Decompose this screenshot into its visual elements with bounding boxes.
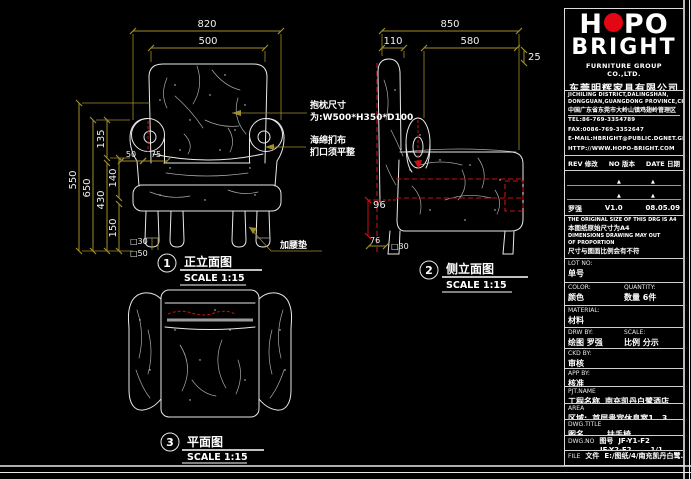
field-dwg-no: DWG.NO 图号 JF-Y1-F2 JF-Y2-F2 1/1 bbox=[565, 436, 683, 452]
field-lot-value: 单号 bbox=[568, 268, 680, 279]
note-en-2: DIMENSIONS DRAWING MAY OUT bbox=[568, 233, 680, 240]
field-area-label-cn: 区域: bbox=[568, 413, 587, 420]
field-color-label: COLOR: bbox=[568, 284, 624, 292]
field-file-value: E:/图纸/4/南充凯丹白鹭... bbox=[604, 452, 683, 460]
dim-front-820: 820 bbox=[197, 19, 216, 30]
title-block: H PO BRIGHT FURNITURE GROUP CO.,LTD. 东莞明… bbox=[564, 8, 683, 466]
field-quantity: QUANTITY: 数量 6件 bbox=[624, 284, 680, 305]
company-logo: H PO BRIGHT FURNITURE GROUP CO.,LTD. 东莞明… bbox=[565, 9, 683, 91]
fabric-speckles bbox=[159, 74, 255, 200]
field-file: FILE 文件 E:/图纸/4/南充凯丹白鹭... bbox=[565, 451, 683, 465]
field-area: AREA 区域: 首层贵宾休息室1、3 bbox=[565, 404, 683, 420]
email-address: E-MAIL:HBRIGHT@PUBLIC.DGNET.GD.CN bbox=[568, 135, 680, 145]
field-dwg-title-label: DWG.TITLE bbox=[568, 421, 680, 429]
view3-title: 平面图 bbox=[187, 435, 223, 449]
revision-rule-2 bbox=[567, 199, 681, 200]
revision-date: 08.05.09 bbox=[645, 204, 680, 214]
side-chair-drawing bbox=[377, 59, 524, 254]
website-url: HTTP://WWW.HOPO-BRIGHT.COM bbox=[568, 145, 680, 155]
dim-front-leg50: □50 bbox=[130, 249, 148, 258]
rev-col-label: REV 修改 bbox=[568, 158, 598, 168]
revision-triangle-icon: ▲ bbox=[617, 179, 621, 185]
dim-front-75: 75 bbox=[151, 150, 161, 159]
field-material-value: 材料 bbox=[568, 315, 680, 326]
annotation-pillow-line1: 抱枕尺寸 bbox=[310, 99, 346, 111]
field-dwg-title: DWG.TITLE 图名 扶手椅 bbox=[565, 420, 683, 436]
view2-number: 2 bbox=[425, 264, 433, 277]
note-cn-2: 尺寸与图面比例会有不符 bbox=[568, 247, 680, 256]
field-ckd-value: 审核 bbox=[568, 358, 680, 369]
field-drw-scale: DRW BY: 绘图 罗强 SCALE: 比例 分示 bbox=[565, 328, 683, 350]
field-area-value: 首层贵宾休息室1、3 bbox=[592, 413, 667, 420]
field-material-label: MATERIAL: bbox=[568, 307, 680, 315]
company-name-en: FURNITURE GROUP CO.,LTD. bbox=[568, 62, 680, 78]
field-scale-value: 比例 分示 bbox=[624, 337, 680, 348]
view1-title: 正立面图 bbox=[184, 254, 232, 269]
revision-triangle-icon: ▲ bbox=[651, 179, 655, 185]
dim-front-500: 500 bbox=[198, 36, 217, 47]
revision-entry: 罗强 V1.0 08.05.09 bbox=[568, 204, 680, 214]
field-scale-label: SCALE: bbox=[624, 329, 680, 337]
field-project-value: 南充凯丹白鹭酒店 bbox=[605, 396, 669, 405]
field-ckd-label: CKD BY: bbox=[568, 350, 680, 358]
field-area-label: AREA bbox=[568, 405, 680, 413]
dim-side-580: 580 bbox=[460, 36, 479, 47]
dim-side-110: 110 bbox=[383, 36, 402, 47]
field-file-label: FILE bbox=[568, 453, 580, 461]
note-cn-1: 本图纸原始尺寸为A4 bbox=[568, 224, 680, 233]
field-project-label: PJT.NAME bbox=[568, 388, 680, 396]
view3-number: 3 bbox=[166, 436, 174, 449]
field-dwg-no-label-cn: 图号 bbox=[599, 437, 613, 445]
logo-red-dot-icon bbox=[604, 13, 623, 32]
dim-front-140: 140 bbox=[108, 168, 119, 187]
field-scale: SCALE: 比例 分示 bbox=[624, 329, 680, 348]
address-cn: 中国广东省东莞市大岭山镇鸡翅岭管理区 bbox=[568, 106, 680, 116]
field-quantity-label: QUANTITY: bbox=[624, 284, 680, 292]
plan-view-label: 3 平面图 SCALE 1:15 bbox=[161, 433, 264, 463]
annotation-fabric-line1: 海绵扪布 bbox=[310, 134, 346, 146]
field-drw-label: DRW BY: bbox=[568, 329, 624, 337]
date-col-label: DATE 日期 bbox=[646, 158, 680, 168]
revision-rule-1 bbox=[567, 185, 681, 186]
fax-number: FAX:0086-769-3352647 bbox=[568, 126, 680, 136]
field-dwg-title-value: 扶手椅 bbox=[607, 429, 631, 436]
revision-triangle-icon: ▲ bbox=[617, 193, 621, 199]
drawing-notes: THE ORIGINAL SIZE OF THIS DRG IS A4 本图纸原… bbox=[565, 216, 683, 259]
field-file-label-cn: 文件 bbox=[585, 452, 599, 460]
dim-side-76: 76 bbox=[370, 236, 380, 245]
company-contact: JICHILING DISTRICT,DALINGSHAN, DONGGUAN,… bbox=[565, 91, 683, 155]
side-view-label: 2 侧立面图 SCALE 1:15 bbox=[420, 261, 528, 292]
address-en-line1: JICHILING DISTRICT,DALINGSHAN, bbox=[568, 92, 680, 99]
fabric-speckles bbox=[387, 89, 500, 220]
dim-side-leg30: □30 bbox=[391, 242, 409, 251]
revision-header: REV 修改 NO 版本 DATE 日期 bbox=[565, 156, 683, 172]
dim-side-850: 850 bbox=[440, 19, 459, 30]
field-project: PJT.NAME 工程名称 南充凯丹白鹭酒店 bbox=[565, 387, 683, 405]
view1-number: 1 bbox=[163, 257, 171, 270]
field-dwg-title-label-cn: 图名 bbox=[568, 429, 584, 436]
field-color-quantity: COLOR: 颜色 QUANTITY: 数量 6件 bbox=[565, 283, 683, 307]
field-project-label-cn: 工程名称 bbox=[568, 396, 600, 405]
dim-front-550: 550 bbox=[68, 170, 79, 189]
field-ckd: CKD BY: 审核 bbox=[565, 349, 683, 369]
side-view: 850 110 580 25 96 76 □30 2 侧立面图 SCALE 1:… bbox=[368, 19, 541, 292]
dim-front-430: 430 bbox=[96, 190, 107, 209]
logo-bright: BRIGHT bbox=[568, 38, 680, 58]
dim-side-25: 25 bbox=[528, 52, 541, 63]
view1-scale: SCALE 1:15 bbox=[184, 273, 245, 284]
dim-front-leg30: □30 bbox=[130, 237, 148, 246]
cad-sheet: 820 500 550 650 135 430 140 150 50 75 □3… bbox=[0, 0, 691, 479]
field-color: COLOR: 颜色 bbox=[568, 284, 624, 305]
side-dimensions: 850 110 580 25 96 76 □30 bbox=[368, 19, 541, 251]
dim-front-135: 135 bbox=[96, 129, 107, 148]
annotation-pillow-line2: 为:W500*H350*D100 bbox=[310, 111, 413, 123]
field-app-label: APP BY: bbox=[568, 370, 680, 378]
field-lot-no: LOT NO: 单号 bbox=[565, 259, 683, 283]
no-col-label: NO 版本 bbox=[609, 158, 635, 168]
field-app-value: 核准 bbox=[568, 378, 680, 387]
annotation-fabric-line2: 扪口须平整 bbox=[310, 146, 355, 158]
field-dwg-no-label: DWG.NO bbox=[568, 438, 594, 446]
field-app: APP BY: 核准 bbox=[565, 369, 683, 387]
field-material: MATERIAL: 材料 bbox=[565, 306, 683, 328]
dim-front-50: 50 bbox=[126, 150, 136, 159]
front-view: 820 500 550 650 135 430 140 150 50 75 □3… bbox=[68, 19, 413, 285]
dim-front-150: 150 bbox=[108, 218, 119, 237]
field-lot-label: LOT NO: bbox=[568, 260, 680, 268]
dim-side-96: 96 bbox=[373, 200, 386, 211]
field-quantity-value: 数量 6件 bbox=[624, 292, 680, 303]
revision-triangle-icon: ▲ bbox=[651, 193, 655, 199]
company-name-cn: 东莞明辉家具有限公司 bbox=[568, 80, 680, 91]
front-annotations: 抱枕尺寸 为:W500*H350*D100 海绵扪布 扪口须平整 加腰垫 bbox=[232, 99, 413, 251]
field-drw: DRW BY: 绘图 罗强 bbox=[568, 329, 624, 348]
view2-title: 侧立面图 bbox=[446, 261, 494, 276]
plan-view: 3 平面图 SCALE 1:15 bbox=[128, 290, 291, 463]
revision-table: ▲ ▲ ▲ ▲ 罗强 V1.0 08.05.09 bbox=[565, 171, 683, 216]
field-color-value: 颜色 bbox=[568, 292, 624, 303]
front-view-label: 1 正立面图 SCALE 1:15 bbox=[158, 254, 262, 285]
view3-scale: SCALE 1:15 bbox=[187, 452, 248, 463]
field-drw-value: 绘图 罗强 bbox=[568, 337, 624, 348]
view2-scale: SCALE 1:15 bbox=[446, 280, 507, 291]
field-dwg-no-value1: JF-Y1-F2 bbox=[618, 437, 650, 445]
revision-version: V1.0 bbox=[605, 204, 623, 214]
plan-chair-drawing bbox=[128, 290, 291, 417]
revision-author: 罗强 bbox=[568, 204, 582, 214]
annotation-lumbar: 加腰垫 bbox=[279, 239, 307, 251]
dim-front-650: 650 bbox=[82, 178, 93, 197]
phone-number: TEL:86-769-3354789 bbox=[568, 116, 680, 126]
address-en-line2: DONGGUAN,GUANGDONG PROVINCE,CHINA bbox=[568, 99, 680, 106]
